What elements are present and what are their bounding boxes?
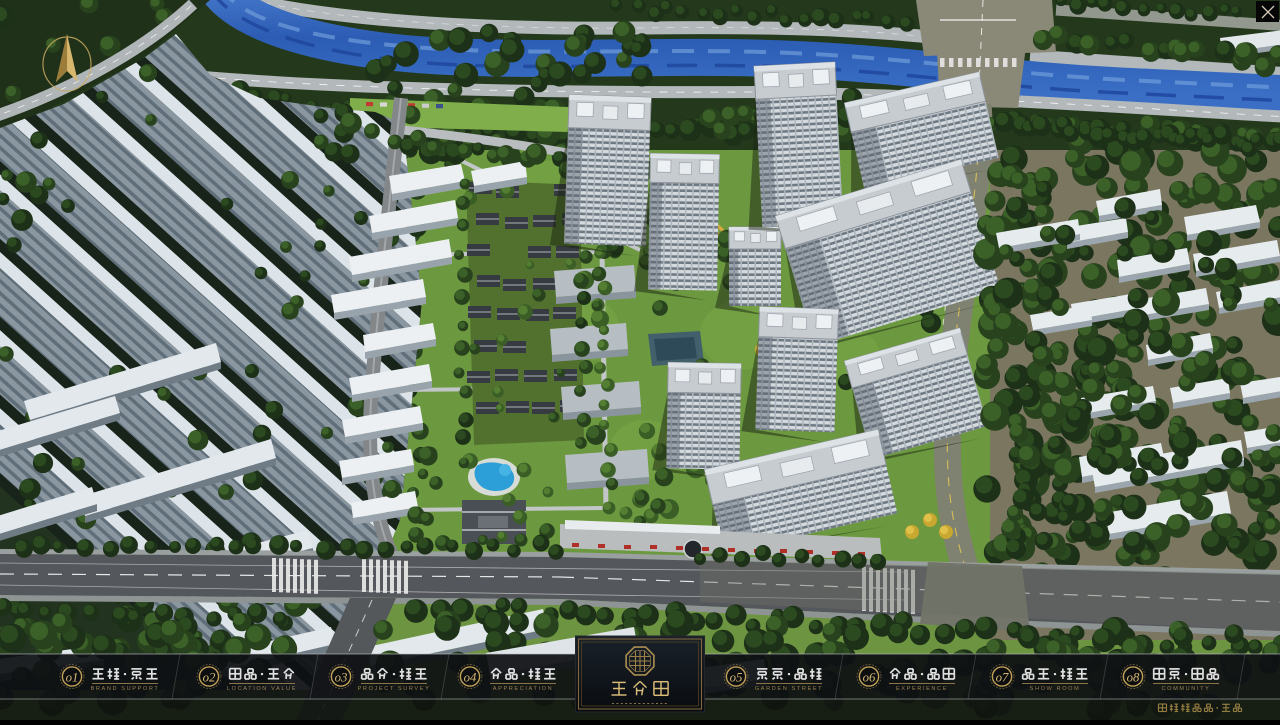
svg-text:APPRECIATION: APPRECIATION (493, 686, 553, 692)
svg-text:o1: o1 (66, 671, 79, 685)
svg-text:SHOW ROOM: SHOW ROOM (1030, 686, 1081, 692)
svg-text:o2: o2 (203, 671, 216, 685)
svg-text:EXPERIENCE: EXPERIENCE (896, 686, 948, 692)
svg-text:PROJECT SURVEY: PROJECT SURVEY (358, 686, 431, 692)
svg-text:o8: o8 (1127, 671, 1140, 685)
svg-text:o6: o6 (863, 671, 876, 685)
svg-text:o7: o7 (996, 671, 1009, 685)
svg-text:LOCATION VALUE: LOCATION VALUE (227, 686, 297, 692)
svg-text:o4: o4 (464, 671, 477, 685)
svg-text:GARDEN STREET: GARDEN STREET (755, 686, 823, 692)
svg-text:COMMUNITY: COMMUNITY (1162, 686, 1211, 692)
svg-text:o5: o5 (730, 671, 743, 685)
svg-text:o3: o3 (335, 671, 348, 685)
svg-text:BRAND SUPPORT: BRAND SUPPORT (91, 686, 160, 692)
